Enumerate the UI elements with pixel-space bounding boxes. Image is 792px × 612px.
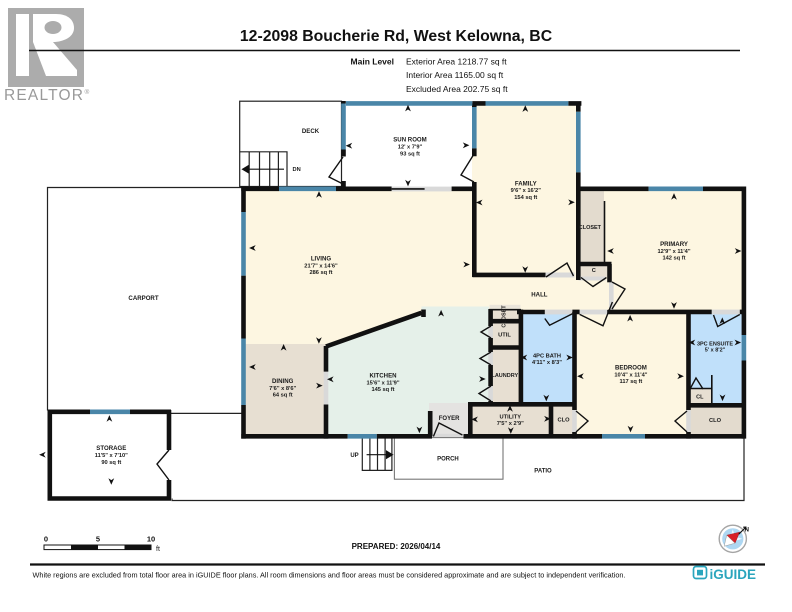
svg-text:PRIMARY: PRIMARY bbox=[660, 241, 688, 248]
svg-text:UP: UP bbox=[350, 453, 358, 459]
svg-text:PATIO: PATIO bbox=[534, 469, 552, 475]
svg-text:iGUIDE: iGUIDE bbox=[710, 567, 757, 582]
svg-text:11'5" x 7'10": 11'5" x 7'10" bbox=[95, 453, 128, 459]
svg-text:ft: ft bbox=[156, 546, 160, 553]
svg-text:CARPORT: CARPORT bbox=[128, 295, 158, 302]
svg-text:CLO: CLO bbox=[709, 418, 722, 424]
svg-text:PREPARED: 2026/04/14: PREPARED: 2026/04/14 bbox=[352, 542, 441, 551]
svg-text:CLOSET: CLOSET bbox=[579, 225, 602, 231]
svg-text:145 sq ft: 145 sq ft bbox=[371, 387, 394, 393]
svg-text:Main Level: Main Level bbox=[351, 57, 394, 67]
svg-text:UTIL: UTIL bbox=[498, 333, 511, 339]
svg-text:CLO: CLO bbox=[557, 418, 570, 424]
svg-text:STORAGE: STORAGE bbox=[96, 445, 126, 452]
svg-text:21'7" x 14'6": 21'7" x 14'6" bbox=[304, 263, 338, 269]
svg-text:9'6" x 16'2": 9'6" x 16'2" bbox=[511, 188, 542, 194]
svg-text:DN: DN bbox=[293, 167, 301, 173]
svg-text:DINING: DINING bbox=[272, 378, 294, 385]
svg-text:FAMILY: FAMILY bbox=[515, 181, 537, 188]
svg-text:®: ® bbox=[85, 88, 90, 96]
svg-text:64 sq ft: 64 sq ft bbox=[273, 393, 293, 399]
svg-text:4PC BATH: 4PC BATH bbox=[533, 354, 561, 360]
svg-text:142 sq ft: 142 sq ft bbox=[662, 256, 685, 262]
svg-text:REALTOR: REALTOR bbox=[4, 87, 84, 104]
svg-text:5: 5 bbox=[96, 535, 100, 544]
svg-text:7'6" x 8'6": 7'6" x 8'6" bbox=[269, 386, 296, 392]
svg-text:HALL: HALL bbox=[531, 292, 548, 299]
svg-text:5' x 8'2": 5' x 8'2" bbox=[705, 348, 726, 354]
svg-text:0: 0 bbox=[44, 535, 48, 544]
svg-text:BEDROOM: BEDROOM bbox=[615, 365, 647, 372]
svg-text:15'6" x 11'9": 15'6" x 11'9" bbox=[366, 380, 399, 386]
svg-text:12-2098 Boucherie Rd, West Kel: 12-2098 Boucherie Rd, West Kelowna, BC bbox=[240, 28, 552, 45]
svg-text:White regions are excluded fro: White regions are excluded from total fl… bbox=[33, 571, 626, 580]
svg-text:7'5" x 2'9": 7'5" x 2'9" bbox=[497, 421, 524, 427]
svg-text:LIVING: LIVING bbox=[311, 256, 332, 263]
svg-text:Excluded Area 202.75 sq ft: Excluded Area 202.75 sq ft bbox=[406, 84, 508, 94]
svg-text:UTILITY: UTILITY bbox=[500, 415, 522, 421]
svg-text:PORCH: PORCH bbox=[437, 457, 459, 463]
svg-text:154 sq ft: 154 sq ft bbox=[514, 195, 537, 201]
svg-text:CLOSET: CLOSET bbox=[501, 305, 507, 328]
svg-text:117 sq ft: 117 sq ft bbox=[620, 379, 643, 385]
svg-text:12' x 7'9": 12' x 7'9" bbox=[398, 145, 423, 151]
svg-text:Exterior Area 1218.77 sq ft: Exterior Area 1218.77 sq ft bbox=[406, 57, 507, 67]
svg-text:DECK: DECK bbox=[302, 128, 320, 135]
svg-text:C: C bbox=[592, 268, 596, 274]
svg-text:10: 10 bbox=[147, 535, 155, 544]
svg-text:286 sq ft: 286 sq ft bbox=[309, 270, 332, 276]
svg-text:93 sq ft: 93 sq ft bbox=[400, 152, 420, 158]
svg-text:10'4" x 11'4": 10'4" x 11'4" bbox=[614, 372, 647, 378]
svg-text:SUN ROOM: SUN ROOM bbox=[393, 137, 427, 144]
svg-text:90 sq ft: 90 sq ft bbox=[101, 460, 121, 466]
svg-text:LAUNDRY: LAUNDRY bbox=[491, 373, 518, 379]
svg-text:12'9" x 11'4": 12'9" x 11'4" bbox=[657, 249, 690, 255]
svg-text:KITCHEN: KITCHEN bbox=[369, 373, 396, 380]
svg-text:N: N bbox=[745, 527, 750, 534]
svg-text:4'11" x 8'3": 4'11" x 8'3" bbox=[532, 360, 562, 366]
svg-text:Interior Area 1165.00 sq ft: Interior Area 1165.00 sq ft bbox=[406, 70, 504, 80]
svg-text:CL: CL bbox=[696, 395, 704, 401]
svg-text:FOYER: FOYER bbox=[439, 416, 460, 422]
